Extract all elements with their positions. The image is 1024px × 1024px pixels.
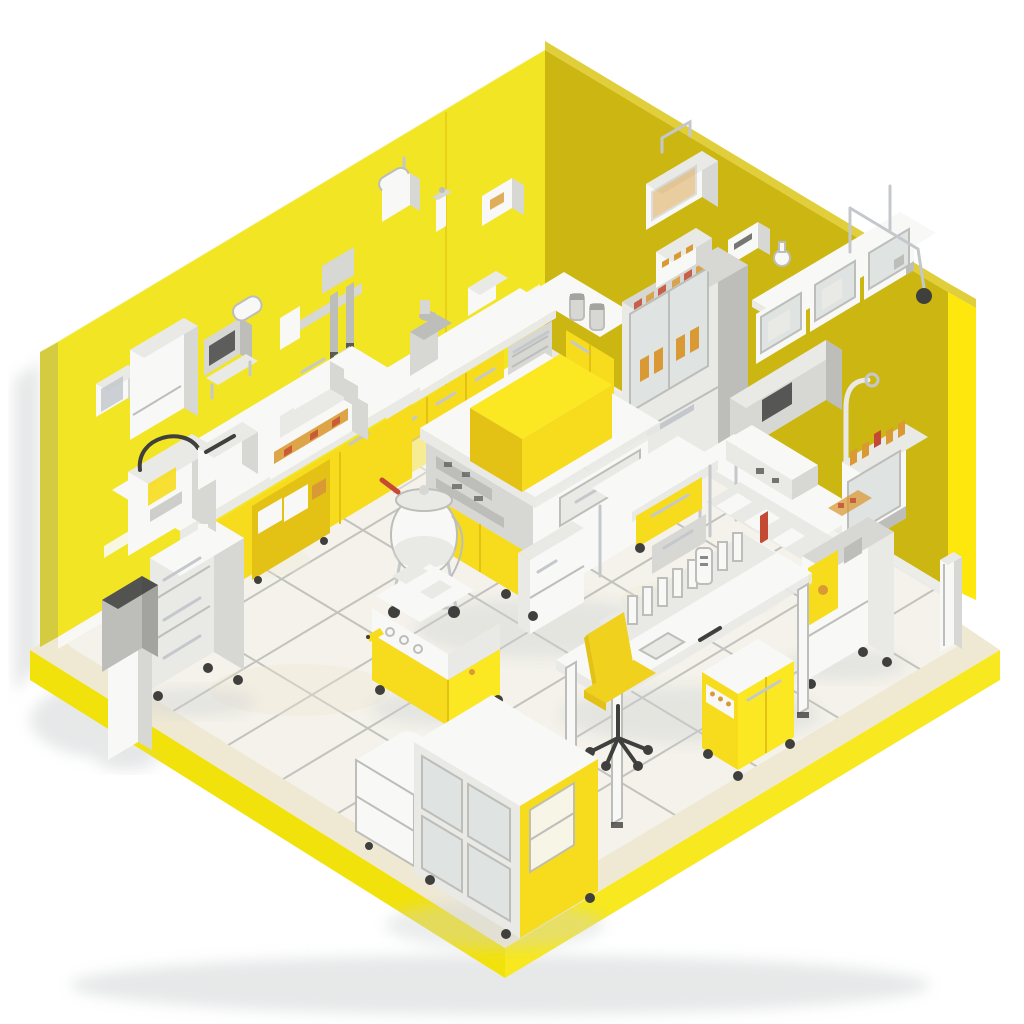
- cassette: [733, 533, 742, 561]
- wall-drop-shadow: [14, 360, 40, 692]
- illustration-canvas: [0, 0, 1024, 1024]
- shadow: [135, 688, 255, 716]
- cup: [198, 524, 208, 536]
- cassette: [628, 596, 637, 624]
- red-book: [760, 511, 768, 544]
- pedestal-post: [940, 552, 962, 652]
- machine-stack: [420, 300, 430, 314]
- lid-knob: [419, 485, 429, 495]
- tip: [439, 187, 445, 193]
- vessel-band: [393, 536, 455, 568]
- flask-neck: [779, 242, 785, 252]
- edge: [518, 553, 530, 634]
- leg: [798, 584, 808, 714]
- cassette: [673, 569, 682, 597]
- cassette: [658, 578, 667, 606]
- tube: [346, 282, 354, 348]
- key: [469, 669, 475, 675]
- panel-dial: [818, 585, 828, 595]
- front: [940, 552, 954, 652]
- side: [826, 340, 842, 410]
- trash-bin: [102, 576, 158, 760]
- tube: [330, 291, 338, 357]
- left-wall-edge: [40, 342, 58, 647]
- shadow: [97, 753, 157, 771]
- stand-knob: [916, 288, 932, 304]
- side: [410, 173, 420, 211]
- isometric-lab-illustration: [0, 0, 1024, 1024]
- cassette: [718, 542, 727, 570]
- side: [954, 552, 962, 649]
- cassette: [643, 587, 652, 615]
- tool-tip: [366, 635, 370, 639]
